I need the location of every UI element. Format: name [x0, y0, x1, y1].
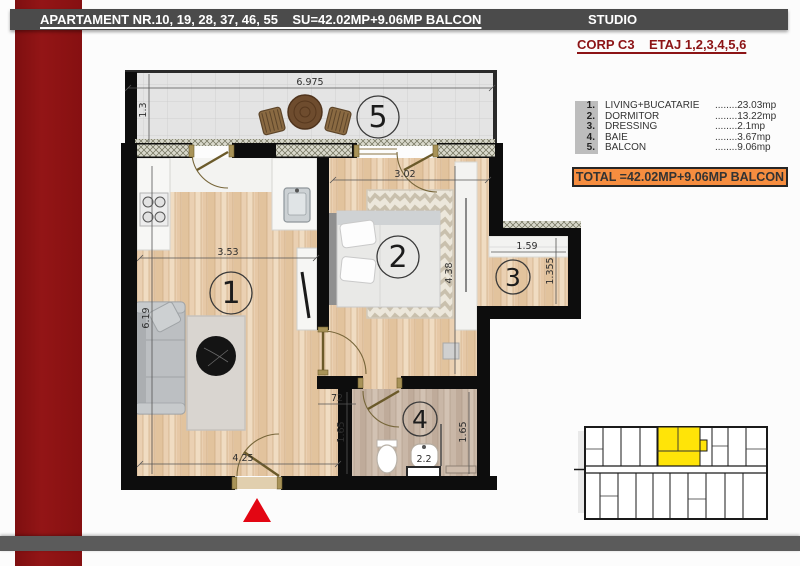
dim-bedroom-height: 4.38: [444, 262, 455, 283]
legend-num: 1.: [575, 101, 598, 112]
floor-plan-drawing: 6.975 1.3 3.53 6.19 3.02 4.38 1.59 1.355…: [0, 0, 800, 566]
dim-hall-width: 72: [331, 393, 343, 404]
kitchen-counter-left: [137, 158, 170, 250]
legend-label: LIVING+BUCATARIE: [605, 101, 715, 112]
balcony-table: [288, 95, 322, 129]
sink-icon: [284, 188, 310, 222]
stove-icon: [140, 193, 168, 226]
entrance-threshold: [237, 477, 277, 489]
room-label-bedroom: 2: [388, 240, 407, 275]
dim-bath-left: 1.65: [336, 421, 347, 442]
legend-row: 1. LIVING+BUCATARIE ........23.03mp: [575, 101, 787, 112]
room-label-dressing: 3: [505, 263, 521, 292]
legend-row: 5. BALCON ........9.06mp: [575, 143, 787, 154]
room-legend: 1. LIVING+BUCATARIE ........23.03mp 2. D…: [575, 101, 787, 154]
legend-value: ........23.03mp: [715, 101, 776, 112]
dim-bath-right: 1.65: [458, 421, 469, 442]
legend-num: 5.: [575, 143, 598, 154]
bed: [327, 211, 440, 307]
legend-value: ........9.06mp: [715, 143, 771, 154]
legend-label: DRESSING: [605, 122, 715, 133]
shower-tray: [446, 466, 476, 473]
floor-plan-page: APARTAMENT NR.10, 19, 28, 37, 46, 55 SU=…: [0, 0, 800, 566]
dim-living-bottom: 4.25: [232, 453, 253, 464]
pillow: [339, 220, 376, 248]
kitchen-counter-sink: [272, 158, 317, 230]
coffee-table: [196, 336, 236, 376]
dim-dressing-width: 1.59: [516, 241, 537, 252]
dim-bedroom-width: 3.02: [394, 169, 415, 180]
dim-balcony-width: 6.975: [296, 77, 323, 88]
dim-bath-sink: 2.2: [416, 454, 431, 465]
room-label-balcony: 5: [368, 100, 387, 135]
key-plan: [574, 427, 767, 519]
corp-etaj-label: CORP C3 ETAJ 1,2,3,4,5,6: [577, 37, 746, 52]
legend-row: 3. DRESSING ........2.1mp: [575, 122, 787, 133]
dim-living-width: 3.53: [217, 247, 238, 258]
bedroom-wardrobe: [455, 162, 477, 330]
entrance-arrow: [243, 498, 271, 522]
legend-label: BALCON: [605, 143, 715, 154]
fixed-glazing: [359, 149, 397, 154]
room-label-bath: 4: [412, 405, 428, 434]
total-area-badge: TOTAL =42.02MP+9.06MP BALCON: [572, 167, 788, 187]
legend-value: ........2.1mp: [715, 122, 765, 133]
dim-living-height: 6.19: [141, 307, 152, 328]
toilet-icon: [377, 440, 397, 473]
dim-balcony-depth: 1.3: [138, 102, 149, 117]
apartment-title: APARTAMENT NR.10, 19, 28, 37, 46, 55 SU=…: [40, 12, 481, 27]
header-bar: APARTAMENT NR.10, 19, 28, 37, 46, 55 SU=…: [10, 9, 788, 30]
dim-dressing-depth: 1.355: [545, 257, 556, 284]
legend-num: 3.: [575, 122, 598, 133]
pouf: [443, 343, 459, 359]
pillow: [340, 256, 376, 283]
apartment-type-label: STUDIO: [588, 12, 637, 27]
room-label-living: 1: [221, 276, 240, 311]
bottom-accent-bar: [0, 536, 800, 551]
